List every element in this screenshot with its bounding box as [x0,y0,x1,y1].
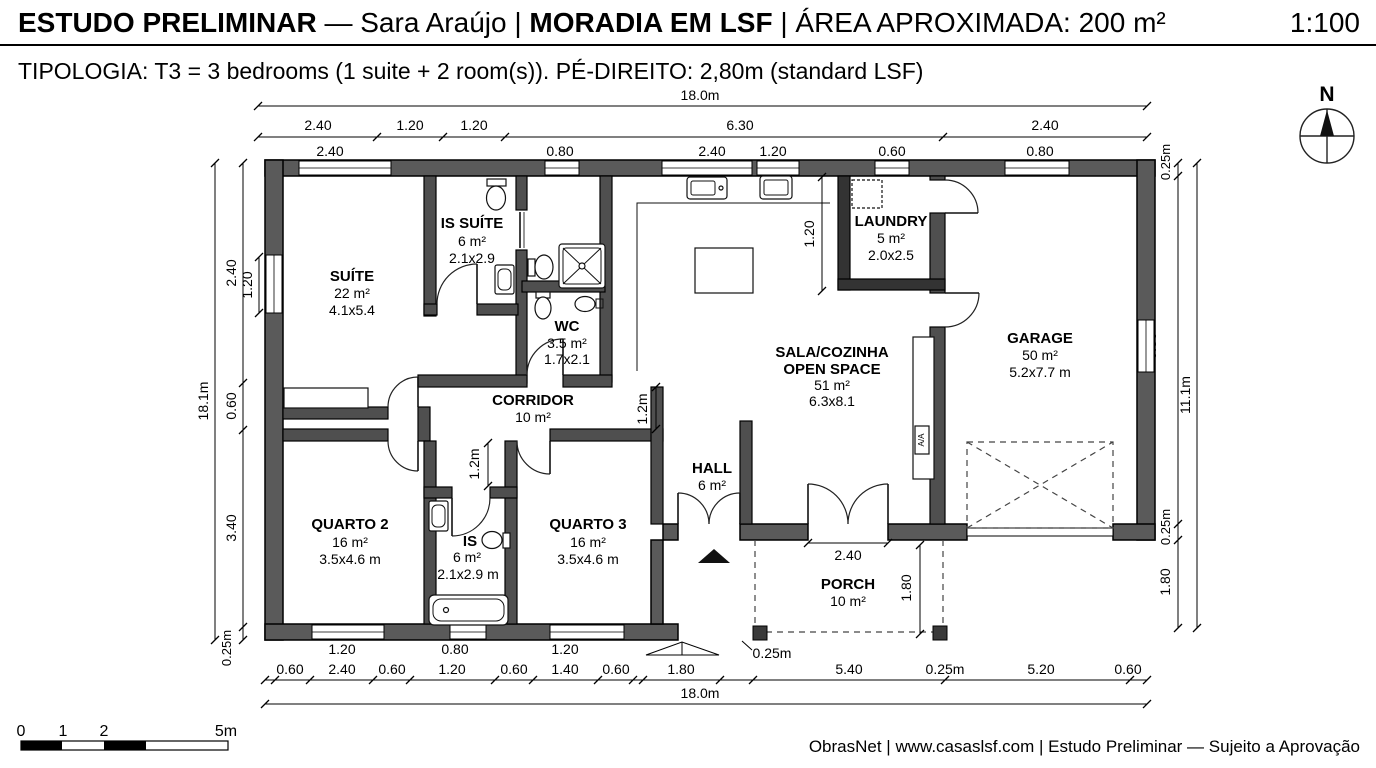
window-kitchen-2 [757,161,799,175]
door-is-suite [437,264,477,304]
svg-text:2.0x2.5: 2.0x2.5 [868,247,914,263]
dim-bot-w3: 0.25m [753,645,792,661]
wall-south-hall-a [663,524,678,540]
dim-top-r3-1: 0.80 [546,143,573,159]
wall-south-sala [888,524,967,540]
wall-wc-west-b [516,250,527,383]
dim-bot-s8: 5.40 [835,661,862,677]
dim-bot-s11: 0.60 [1114,661,1141,677]
svg-text:4.1x5.4: 4.1x5.4 [329,302,375,318]
scalebar-2: 2 [100,723,109,740]
label-quarto2: QUARTO 2 16 m² 3.5x4.6 m [311,516,388,567]
svg-text:HALL: HALL [692,460,732,477]
scalebar-1: 1 [59,723,68,740]
door-suite [388,377,418,407]
dim-porch-depth: 1.80 [898,574,914,601]
dim-bot-s4: 0.60 [500,661,527,677]
wall-post-corridor [418,407,430,441]
dim-top-r2-1: 1.20 [396,117,423,133]
dim-bottom-overall: 18.0m [681,685,720,701]
dimensions-top: 18.0m 2.40 1.20 1.20 6.30 2.40 2.40 0.80… [254,87,1151,159]
door-sala-garage [945,293,979,327]
entry-step-mark [646,642,719,655]
wall-suite-south [283,407,388,419]
drawing-scale: 1:100 [1290,7,1360,38]
svg-text:QUARTO 3: QUARTO 3 [549,516,626,533]
sink-is-suite [495,265,514,294]
svg-text:10 m²: 10 m² [515,409,551,425]
window-quarto3-south [550,625,624,639]
dim-left-3: 0.25m [219,630,234,666]
label-quarto3: QUARTO 3 16 m² 3.5x4.6 m [549,516,626,567]
svg-text:6.3x8.1: 6.3x8.1 [809,393,855,409]
wall-corridor-north-b [563,375,612,387]
dim-bot-s0: 0.60 [276,661,303,677]
window-is-south [450,625,486,639]
svg-text:22 m²: 22 m² [334,285,370,301]
svg-text:OPEN SPACE: OPEN SPACE [783,361,880,378]
svg-text:SUÍTE: SUÍTE [330,268,374,285]
wall-issuite-south-b [477,304,518,315]
wardrobe-suite [284,388,368,408]
wall-laundry-west [838,176,850,290]
dim-left-1: 0.60 [223,392,239,419]
window-shower-north [545,161,579,175]
entry-arrow [698,549,730,563]
wall-hall-east [740,421,752,524]
sheet-title: ESTUDO PRELIMINAR — Sara Araújo | MORADI… [18,7,1166,38]
wall-hall-west [651,387,663,524]
svg-text:WC: WC [555,318,580,335]
exterior-walls [265,160,1155,640]
door-garage-vehicle [967,528,1113,536]
door-is [452,498,490,536]
scalebar-0: 0 [17,723,26,740]
window-laundry [875,161,909,175]
label-corridor: CORRIDOR 10 m² [492,392,574,425]
label-hall: HALL 6 m² [692,460,732,493]
door-quarto3 [517,441,550,474]
dim-top-overall: 18.0m [681,87,720,103]
wall-laundry-south [838,279,945,290]
wall-south-garage [1113,524,1155,540]
toilet-shower-room [528,255,553,279]
dim-top-r2-2: 1.20 [460,117,487,133]
wall-issuite-south-a [424,304,437,315]
dim-top-r3-0: 2.40 [316,143,343,159]
wall-south-hall-b [740,524,808,540]
svg-text:QUARTO 2: QUARTO 2 [311,516,388,533]
label-laundry: LAUNDRY 5 m² 2.0x2.5 [855,213,928,263]
counter-sala-east [913,337,934,479]
dim-corridor-width: 1.2m [466,448,482,479]
dim-bot-s10: 5.20 [1027,661,1054,677]
window-suite-west [266,255,282,313]
scalebar-seg2 [104,741,146,750]
dim-right-walltop: 0.25m [1158,144,1173,180]
door-entrance-double [678,493,740,524]
wall-garage-west-top [930,176,945,180]
svg-text:16 m²: 16 m² [332,534,368,550]
svg-text:3.5x4.6 m: 3.5x4.6 m [557,551,618,567]
svg-text:6 m²: 6 m² [698,477,726,493]
scalebar-5m: 5m [215,723,237,740]
dim-top-r3-4: 0.60 [878,143,905,159]
wall-quarto3-north [550,429,663,441]
porch-post-left [753,626,767,640]
dim-right-wallbottom: 0.25m [1158,509,1173,545]
label-sala: SALA/COZINHA OPEN SPACE 51 m² 6.3x8.1 [775,344,888,409]
svg-text:6 m²: 6 m² [458,233,486,249]
door-laundry-garage [945,180,978,213]
shower-tray [559,244,605,288]
svg-text:SALA/COZINHA: SALA/COZINHA [775,344,888,361]
label-is-suite: IS SUÍTE 6 m² 2.1x2.9 [441,215,504,266]
dim-top-r2-3: 6.30 [726,117,753,133]
north-label: N [1319,83,1334,106]
label-suite: SUÍTE 22 m² 4.1x5.4 [329,268,375,318]
dim-sala-door: 2.40 [834,547,861,563]
window-garage-east [1138,320,1154,372]
svg-text:PORCH: PORCH [821,576,875,593]
sheet-subtitle: TIPOLOGIA: T3 = 3 bedrooms (1 suite + 2 … [18,58,923,84]
svg-text:5 m²: 5 m² [877,230,905,246]
wall-wc-west-a [516,176,527,210]
dim-bot-w0: 1.20 [328,641,355,657]
title-block: ESTUDO PRELIMINAR — Sara Araújo | MORADI… [0,7,1376,84]
ac-unit: A/A [915,426,929,454]
dim-bot-s5: 1.40 [551,661,578,677]
window-kitchen-1 [662,161,752,175]
ac-unit-label: A/A [917,433,926,447]
dim-bot-w1: 0.80 [441,641,468,657]
wall-is-north-b [490,487,517,498]
wall-west [265,160,283,640]
svg-text:6 m²: 6 m² [453,549,481,565]
scalebar-seg1 [21,741,62,750]
dim-top-r2-0: 2.40 [304,117,331,133]
wall-entry-recess [651,540,663,624]
porch-post-right [933,626,947,640]
wall-quarto2-north [283,429,388,441]
svg-text:5.2x7.7 m: 5.2x7.7 m [1009,364,1070,380]
wall-corridor-north-a [418,375,527,387]
svg-text:IS: IS [463,533,477,550]
svg-text:2.1x2.9 m: 2.1x2.9 m [437,566,498,582]
svg-text:GARAGE: GARAGE [1007,330,1073,347]
dim-bot-s3: 1.20 [438,661,465,677]
kitchen-cooktop [760,176,792,199]
dim-bot-w2: 1.20 [551,641,578,657]
fixtures: A/A [284,176,1113,625]
dim-bot-s7: 1.80 [667,661,694,677]
wall-is-north-a [424,487,452,498]
svg-text:10 m²: 10 m² [830,593,866,609]
dim-right-porch: 1.80 [1157,568,1173,595]
dim-left-0: 2.40 [223,259,239,286]
bathtub-is [429,595,508,625]
label-porch: PORCH 10 m² [821,576,875,609]
door-shower-room [520,212,524,248]
windows [266,161,1154,639]
parking-space [967,442,1113,528]
wall-issuite-west [424,176,436,316]
door-sala-porch-french [808,484,888,524]
toilet-is-suite [487,179,507,210]
dim-top-r3-5: 0.80 [1026,143,1053,159]
toilet-is [482,532,510,549]
label-wc: WC 3.5 m² 1.7x2.1 [544,318,590,367]
compass-needle [1320,110,1334,136]
svg-text:IS SUÍTE: IS SUÍTE [441,215,504,232]
svg-text:3.5x4.6 m: 3.5x4.6 m [319,551,380,567]
toilet-wc [535,292,551,319]
svg-text:3.5 m²: 3.5 m² [547,335,587,351]
kitchen-sink [687,177,727,199]
dim-passage-width: 1.2m [634,393,650,424]
svg-text:LAUNDRY: LAUNDRY [855,213,928,230]
dim-top-r3-2: 2.40 [698,143,725,159]
sink-is [429,501,448,531]
scale-bar: 0 1 2 5m [17,723,238,750]
svg-text:50 m²: 50 m² [1022,347,1058,363]
svg-text:51 m²: 51 m² [814,377,850,393]
floor-plan-sheet: ESTUDO PRELIMINAR — Sara Araújo | MORADI… [0,0,1376,768]
dim-top-r3-3: 1.20 [759,143,786,159]
washing-machine [852,180,882,208]
door-quarto2 [388,441,418,471]
svg-text:16 m²: 16 m² [570,534,606,550]
dim-top-r2-4: 2.40 [1031,117,1058,133]
dim-laundry-wall: 1.20 [801,220,817,247]
footer-credits: ObrasNet | www.casaslsf.com | Estudo Pre… [809,737,1360,756]
dim-left-window: 1.20 [239,271,255,298]
north-compass: N [1300,83,1354,163]
dim-left-2: 3.40 [223,514,239,541]
dim-bot-s9: 0.25m [926,661,965,677]
label-garage: GARAGE 50 m² 5.2x7.7 m [1007,330,1073,380]
window-suite-north [299,161,391,175]
kitchen-island [695,248,753,293]
dim-bot-s2: 0.60 [378,661,405,677]
svg-text:1.7x2.1: 1.7x2.1 [544,351,590,367]
window-garage-north [1005,161,1069,175]
dim-bot-s1: 2.40 [328,661,355,677]
dim-right-overall: 11.1m [1177,376,1193,414]
sink-wc [575,297,603,312]
dim-bot-s6: 0.60 [602,661,629,677]
svg-text:2.1x2.9: 2.1x2.9 [449,250,495,266]
dim-left-overall: 18.1m [195,382,211,421]
svg-text:CORRIDOR: CORRIDOR [492,392,574,409]
window-quarto2-south [312,625,384,639]
dimensions-left: 18.1m 2.40 0.60 3.40 0.25m 1.20 [195,159,263,666]
